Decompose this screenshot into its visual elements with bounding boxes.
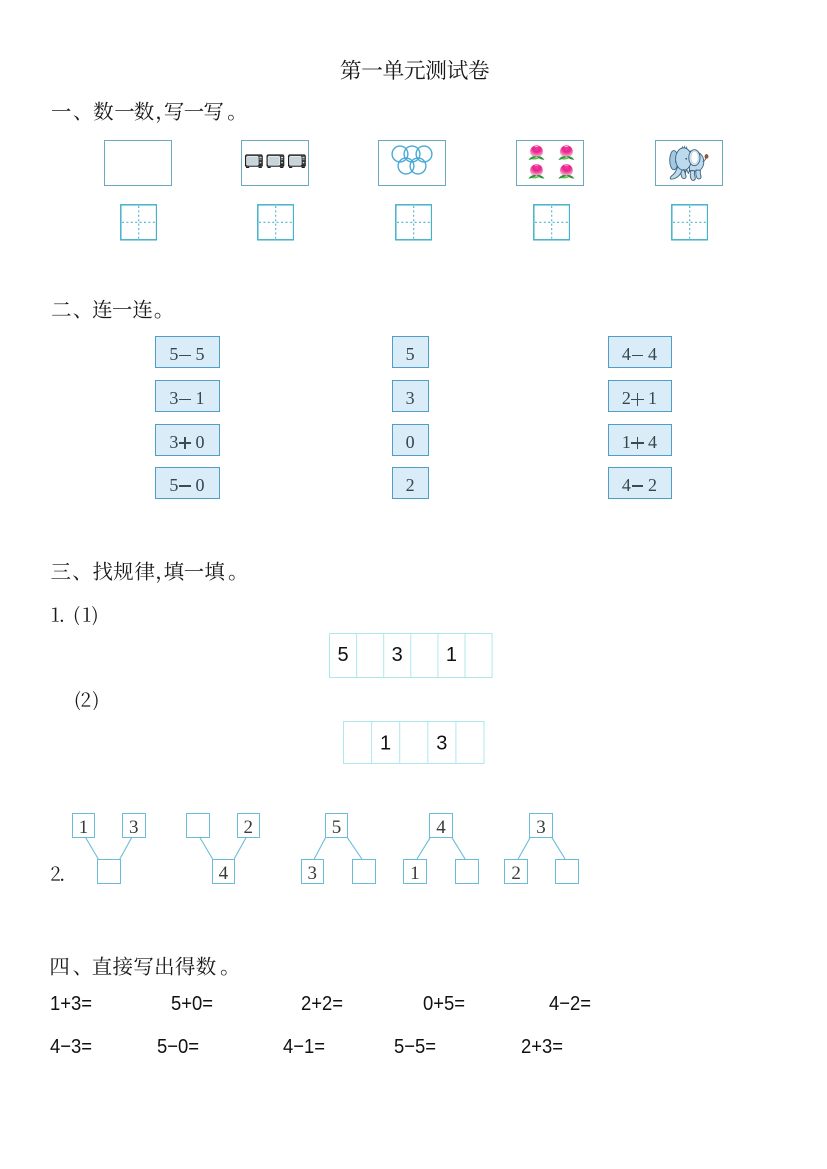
- svg-text:5: 5: [337, 644, 348, 666]
- svg-text:1: 1: [380, 733, 391, 755]
- svg-text:1: 1: [446, 644, 457, 666]
- svg-text:3: 3: [391, 644, 402, 666]
- svg-text:3: 3: [436, 733, 447, 755]
